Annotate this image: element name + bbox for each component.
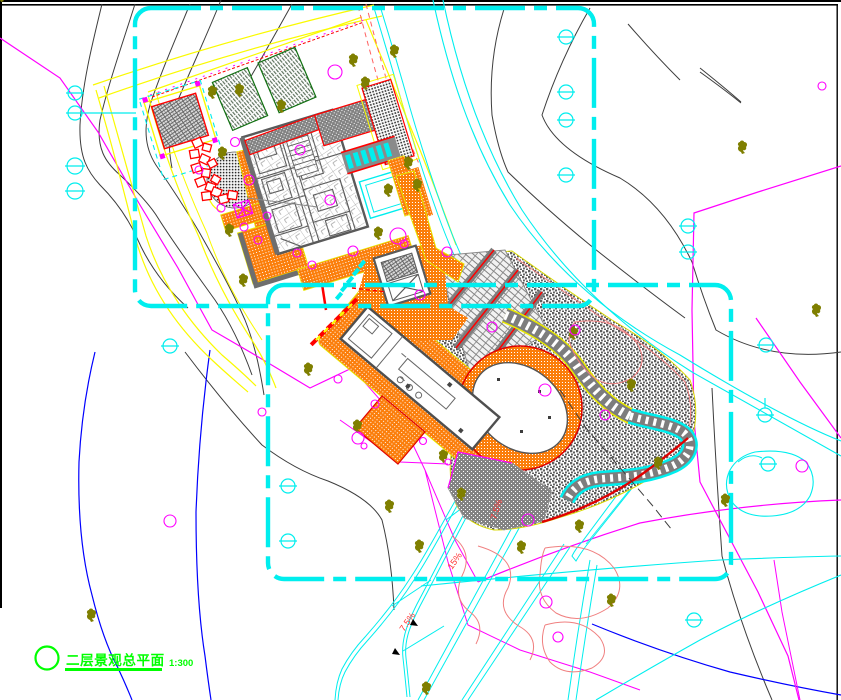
svg-text:二层景观总平面: 二层景观总平面 xyxy=(66,652,165,668)
svg-text:1:300: 1:300 xyxy=(169,658,193,669)
